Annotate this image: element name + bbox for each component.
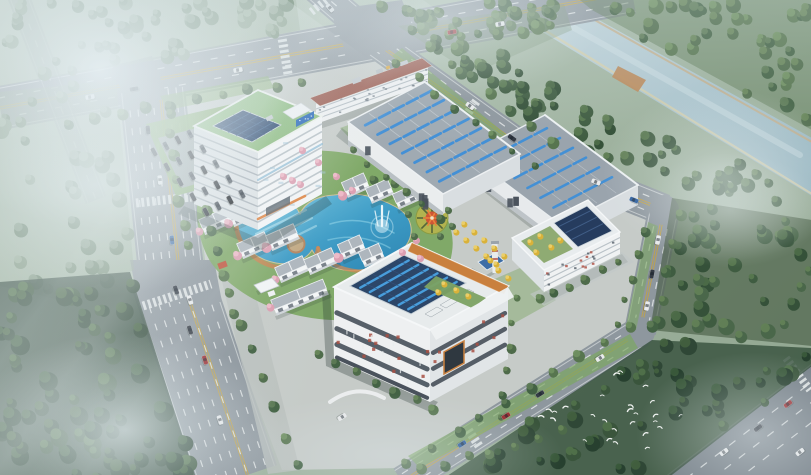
tree bbox=[662, 135, 676, 149]
tree bbox=[467, 71, 479, 83]
tree bbox=[517, 81, 529, 94]
tree bbox=[487, 76, 500, 89]
tree bbox=[771, 196, 782, 207]
aerial-campus-rendering bbox=[0, 0, 811, 475]
tree bbox=[580, 105, 593, 119]
tree bbox=[121, 227, 134, 241]
forest-east bbox=[650, 198, 811, 346]
tree bbox=[658, 150, 666, 159]
tree bbox=[764, 178, 773, 187]
tree bbox=[741, 178, 755, 193]
tree bbox=[660, 339, 674, 354]
tree bbox=[594, 139, 604, 149]
tree bbox=[751, 169, 761, 180]
tree bbox=[734, 158, 746, 170]
tree bbox=[407, 7, 417, 17]
forest-west-strip bbox=[0, 80, 134, 300]
tree bbox=[620, 151, 634, 166]
tree bbox=[660, 166, 670, 176]
tree bbox=[515, 69, 523, 78]
tree bbox=[680, 337, 697, 355]
tree bbox=[498, 60, 512, 74]
tree bbox=[643, 152, 658, 167]
scene-graphics bbox=[0, 0, 811, 475]
tree bbox=[550, 101, 559, 110]
tree bbox=[640, 131, 655, 147]
tree bbox=[602, 114, 614, 127]
tree bbox=[485, 88, 496, 100]
tree bbox=[505, 105, 516, 117]
